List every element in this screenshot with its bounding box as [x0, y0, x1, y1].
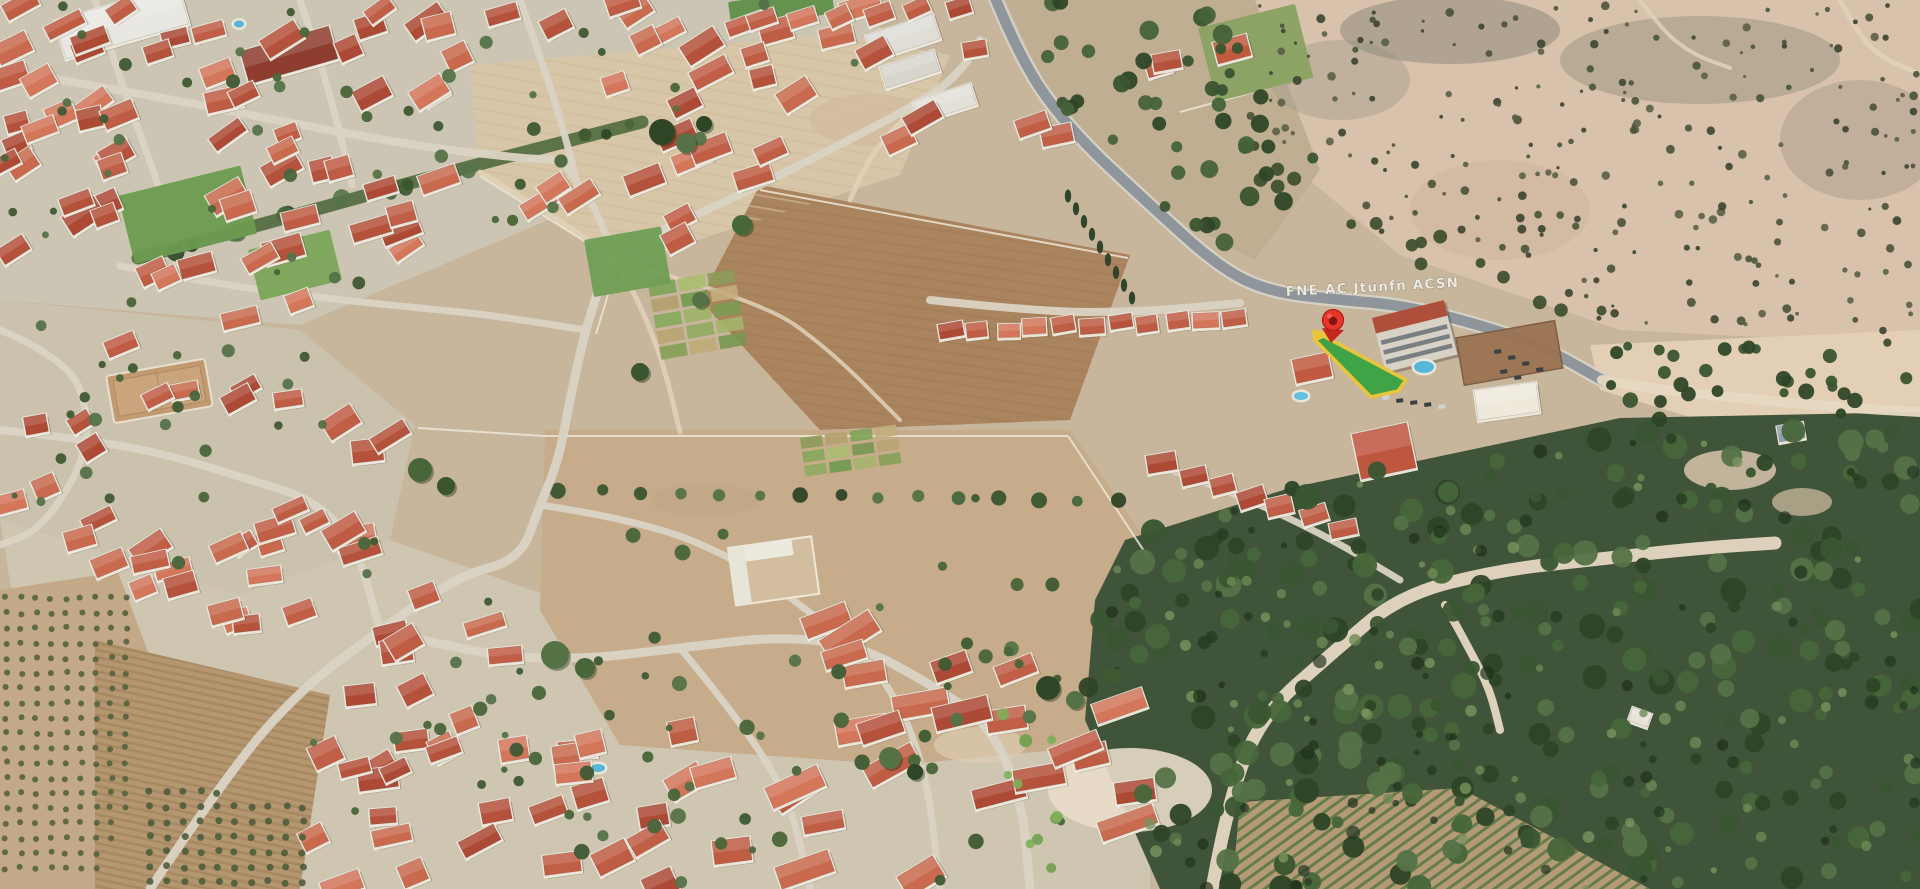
house [368, 806, 399, 828]
hedge-tree [401, 178, 413, 190]
tree-row-tree [792, 487, 808, 503]
cypress-tree [1129, 292, 1135, 305]
tree-row-tree [597, 484, 608, 495]
cypress-tree [1081, 215, 1087, 228]
terrain-blotch [1560, 16, 1840, 104]
tree-row-tree [1072, 496, 1083, 507]
tree-clump [575, 658, 595, 678]
tree-row-tree [675, 488, 686, 499]
cypress-tree [1089, 228, 1095, 241]
pin-highlight [1327, 314, 1332, 319]
cypress-tree [1073, 202, 1079, 215]
parked-car [1508, 355, 1515, 360]
tree-row-tree [755, 491, 765, 501]
parcel-pool [1294, 392, 1308, 400]
terrain-blotch [651, 484, 759, 516]
tree-row-tree [952, 491, 966, 505]
tree-clump [631, 363, 649, 381]
tree-clump [676, 133, 696, 153]
tree-row-tree [912, 490, 924, 502]
parked-car [1500, 369, 1507, 374]
tree-clump [907, 764, 923, 780]
tree-row-tree [634, 487, 647, 500]
aerial-map[interactable]: FNE AC Jtunfn ACSN [0, 0, 1920, 889]
tree-clump [541, 641, 569, 669]
house [997, 323, 1022, 342]
big-field-center [540, 430, 1160, 765]
tree-clump [437, 477, 455, 495]
cypress-tree [1097, 241, 1103, 254]
hedge-tree [624, 119, 634, 129]
parked-car [1410, 400, 1417, 405]
house [487, 645, 526, 668]
farm-compound [728, 536, 819, 605]
parked-car [1536, 367, 1543, 372]
parked-car [1494, 349, 1501, 354]
house [1191, 311, 1221, 332]
hedge-tree [601, 129, 612, 140]
house [1078, 317, 1108, 339]
tree-clump [1036, 676, 1060, 700]
cypress-tree [1065, 190, 1071, 203]
house [1220, 308, 1249, 331]
house [22, 412, 52, 439]
tree-row-tree [872, 492, 883, 503]
hotel-pool [1414, 361, 1434, 373]
house [964, 320, 990, 342]
tree-clump [732, 215, 752, 235]
parked-car [1438, 404, 1445, 409]
house [1021, 317, 1049, 339]
cypress-tree [1121, 279, 1127, 292]
tree-clump [696, 116, 712, 132]
hedge-tree [461, 164, 476, 179]
tree-clump [692, 292, 708, 308]
tree-row-tree [1111, 493, 1126, 508]
tree-row-tree [1031, 492, 1047, 508]
topleft-pool [234, 21, 244, 28]
parked-car [1522, 361, 1529, 366]
hedge-tree [333, 189, 351, 207]
tree-row-tree [836, 489, 848, 501]
house [343, 682, 379, 710]
tree-clump [879, 747, 901, 769]
cypress-tree [1105, 253, 1111, 266]
cypress-tree [1113, 266, 1119, 279]
tree-row-tree [713, 489, 725, 501]
parked-car [1424, 402, 1431, 407]
terrain-blotch [1772, 488, 1832, 516]
tree-clump [408, 458, 432, 482]
house [1134, 313, 1161, 337]
house [1165, 310, 1192, 333]
parked-car [1514, 375, 1521, 380]
tree-row-tree [991, 490, 1006, 505]
tree-clump [649, 119, 675, 145]
aerial-canvas[interactable]: FNE AC Jtunfn ACSN [0, 0, 1920, 889]
tree-clump [1066, 691, 1084, 709]
parked-car [1396, 398, 1403, 403]
